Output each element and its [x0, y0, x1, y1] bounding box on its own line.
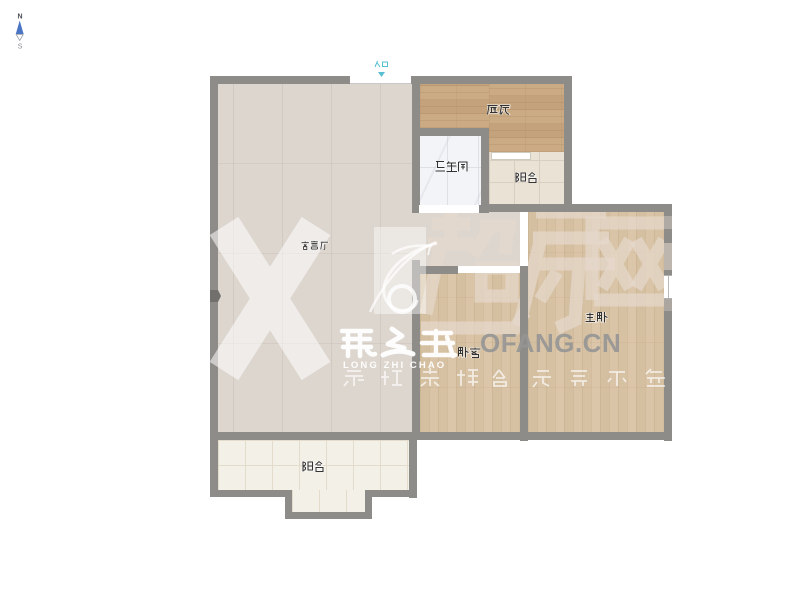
svg-text:S: S — [18, 44, 23, 51]
svg-text:OFANG.CN: OFANG.CN — [480, 328, 621, 358]
svg-text:N: N — [18, 14, 23, 21]
